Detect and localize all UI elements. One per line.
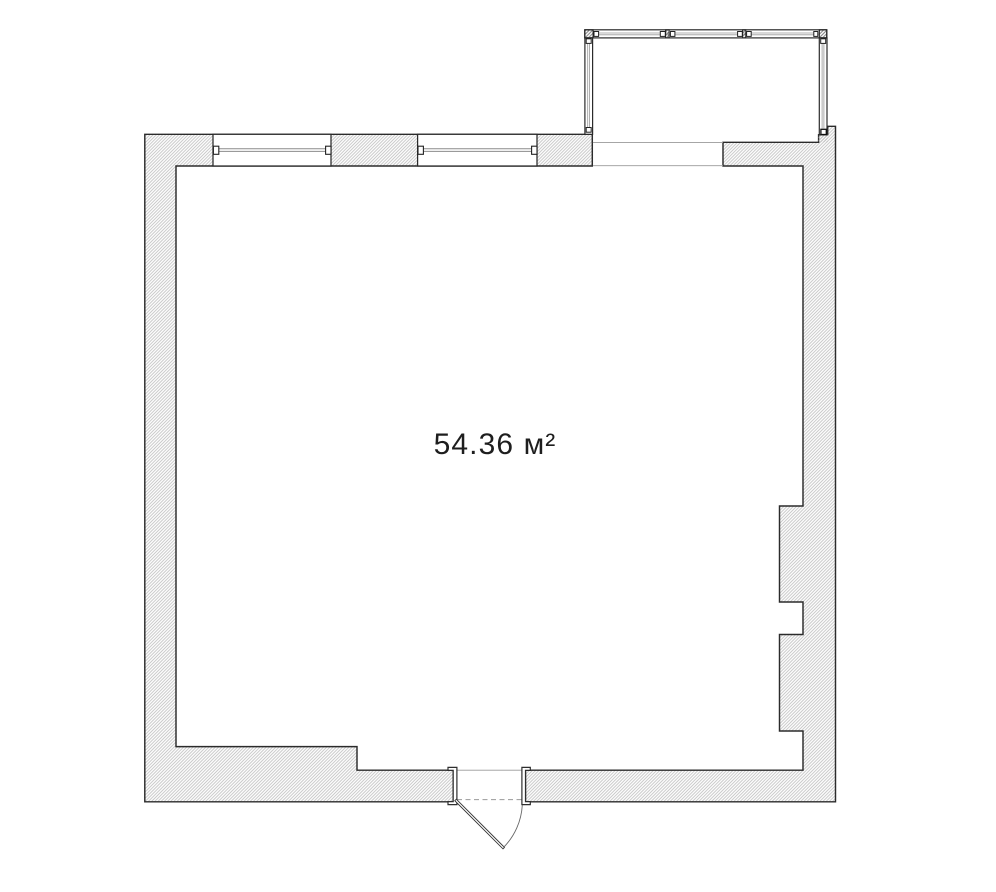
svg-text:54.36 м²: 54.36 м² xyxy=(434,428,557,461)
